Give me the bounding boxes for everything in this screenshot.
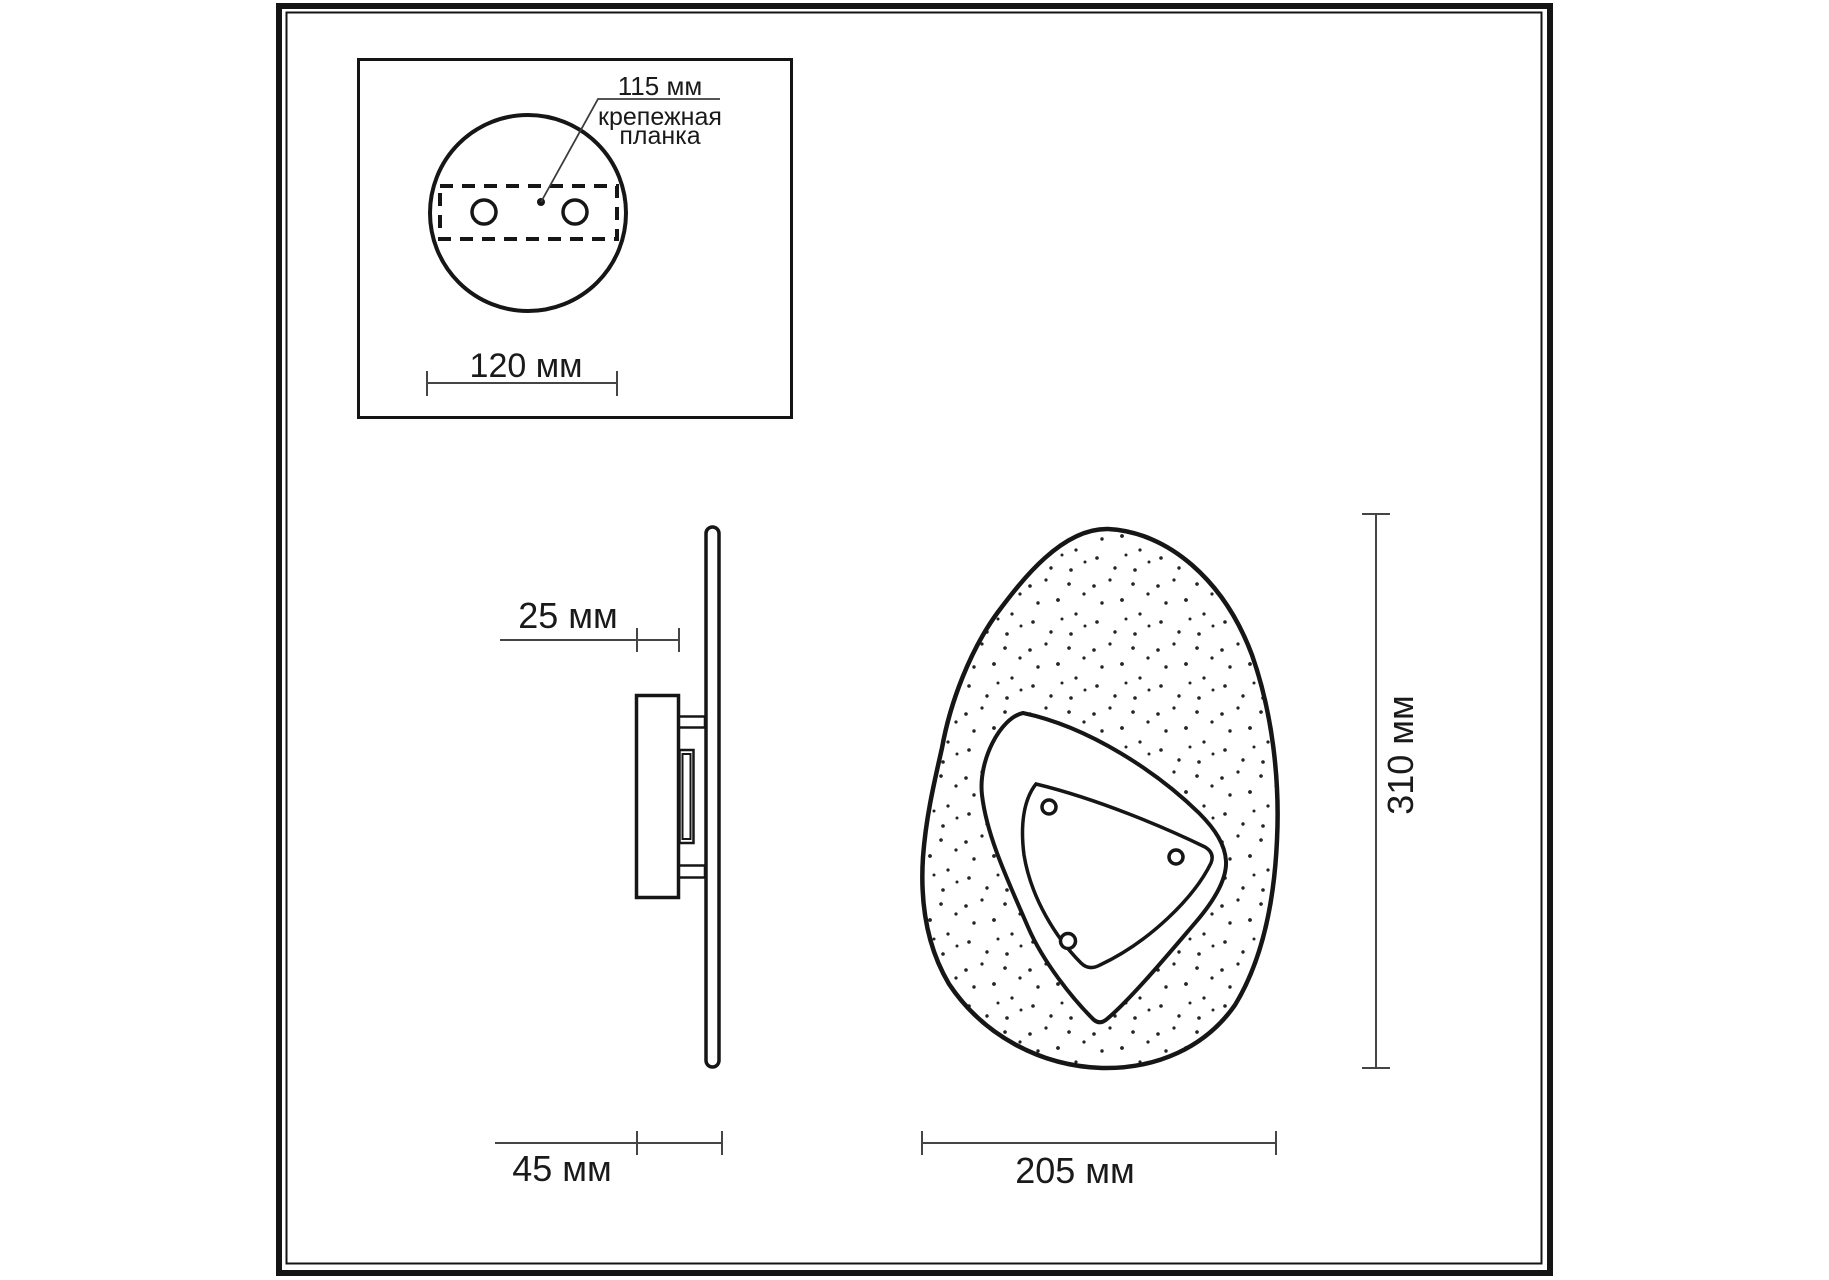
fixing-hole-right	[1169, 850, 1183, 864]
screw-hole-left	[472, 200, 496, 224]
mount-box	[637, 696, 679, 898]
technical-drawing-page: 115 мм крепежная планка 120 мм 25 мм	[0, 0, 1829, 1280]
base-width-dimension-label: 120 мм	[470, 347, 583, 385]
height-dimension: 310 мм	[1362, 514, 1421, 1068]
total-depth-dimension-label: 45 мм	[512, 1148, 612, 1189]
detail-inset-view: 115 мм крепежная планка 120 мм	[359, 60, 792, 418]
fixing-hole-bottom	[1061, 934, 1076, 949]
width-dimension: 205 мм	[922, 1131, 1276, 1191]
mounting-plate-label-line2: планка	[619, 122, 700, 150]
front-depth-dimension-label: 25 мм	[518, 595, 618, 636]
width-dimension-label: 205 мм	[1015, 1150, 1135, 1191]
side-view: 25 мм 45 мм	[495, 527, 722, 1189]
fixing-hole-top	[1042, 800, 1056, 814]
glass-panel-edge	[706, 527, 719, 1067]
total-depth-dimension: 45 мм	[495, 1131, 722, 1189]
hole-spacing-dimension-label: 115 мм	[618, 71, 702, 101]
upper-bracket-tab	[679, 717, 705, 728]
round-base-outline	[430, 115, 626, 311]
front-depth-dimension: 25 мм	[500, 595, 680, 652]
lower-bracket-tab	[679, 866, 705, 878]
drawing-canvas: 115 мм крепежная планка 120 мм 25 мм	[0, 0, 1829, 1280]
screw-hole-right	[563, 200, 587, 224]
height-dimension-label: 310 мм	[1380, 695, 1421, 815]
front-view: 310 мм 205 мм	[922, 514, 1421, 1191]
